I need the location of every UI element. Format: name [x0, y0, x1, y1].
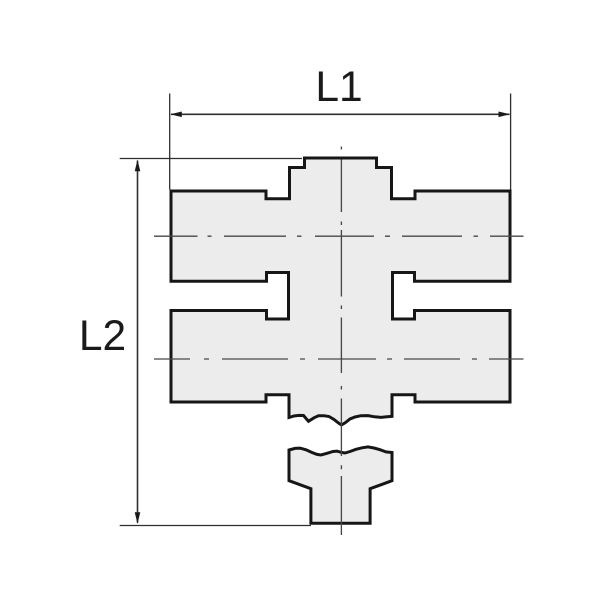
svg-text:L2: L2	[79, 313, 126, 360]
svg-text:L1: L1	[315, 64, 362, 111]
